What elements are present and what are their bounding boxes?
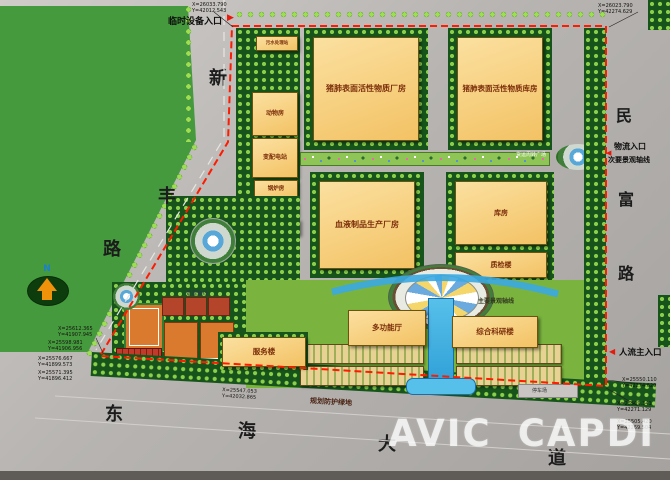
main-axis-label: 主要景观轴线 [478,296,514,305]
building-surfactant-factory: 猪肺表面活性物质厂房 [313,37,419,141]
building-surfactant-warehouse: 猪肺表面活性物质库房 [457,37,543,141]
building-animal-house: 动物房 [252,92,298,136]
grove-surfactant-warehouse: 猪肺表面活性物质库房 [448,28,552,150]
coordinate-label: X=25612.365 Y=41907.945 [58,326,93,339]
small-court [185,297,207,316]
compass-arrow-icon [37,278,57,291]
road-minfu-char: 路 [618,260,634,284]
building-warehouse: 库房 [455,181,547,245]
round-plaza-small [113,283,140,310]
building-research: 综合科研楼 [452,316,538,348]
building-sewage: 污水处理站 [256,36,298,51]
logistics-entrance-arrow-icon: ◀ [606,149,611,157]
secondary-axis-label: 次要景观轴线 [608,155,650,165]
protective-green-label: 规划防护绿地 [310,396,352,408]
road-minfu-char: 民 [616,102,632,126]
coordinate-label: X=26033.790 Y=42012.543 [192,2,227,15]
road-xinfeng-char: 新 [209,64,227,90]
site-plan-canvas: N 污水处理站 动物房 变配电站 锅炉房 乙醇库 化学药品库 猪肺表面活性物质厂… [0,0,670,480]
compass: N [26,264,68,312]
small-court [162,297,184,316]
logistics-entrance-label: 物流入口 [614,141,646,152]
building-substation: 变配电站 [252,138,298,178]
east-tree-strip [584,28,606,384]
coordinate-label: X=25571.395 Y=41896.412 [38,370,73,383]
basketball-court [164,322,198,360]
garden-fountain [190,218,236,264]
west-garden [166,196,300,286]
coordinate-label: X=25576.667 Y=41899.573 [38,356,73,369]
compass-arrow-stem [42,291,52,300]
road-donghai-char: 海 [238,417,256,443]
coordinate-label: X=25598.981 Y=41906.956 [48,340,83,353]
east-green-sliver [658,295,670,347]
coordinate-label: X=25547.053 Y=42032.865 [222,387,257,401]
freight-plaza-label: 货运周转广场 [516,151,546,158]
small-court [208,297,230,316]
temp-entrance-arrow-icon: ▶ [227,13,234,23]
pedestrian-entrance-label: 人流主入口 [619,346,662,358]
northeast-green [648,0,670,30]
grove-blood-factory: 血液制品生产厂房 [310,172,424,278]
coordinate-label: X=25550.110 Y=42274.629 [622,377,657,390]
road-xinfeng-char: 丰 [158,182,176,208]
flower-median [300,152,550,166]
south-row-building [300,344,424,364]
road-minfu-char: 富 [618,186,634,210]
parking-lot [518,384,578,398]
compass-north-label: N [26,264,68,274]
coordinate-label: X=26023.790 Y=42274.629 [598,3,633,16]
bottom-edge-strip [0,471,670,480]
north-treeline [234,9,608,21]
west-axis-label: 景观轴线 [186,289,208,297]
road-xinfeng-char: 路 [103,235,121,261]
watermark: AVICCAPDI [388,412,670,455]
building-blood-factory: 血液制品生产厂房 [319,181,415,269]
temp-entrance-label: 临时设备入口 [168,14,222,27]
building-service: 服务楼 [222,337,306,367]
parking-label: 停车场 [532,387,547,394]
tennis-court [124,303,164,351]
building-multifunction-hall: 多功能厅 [348,310,426,346]
water-pool [406,378,476,395]
watermark-avic: AVIC [388,412,492,455]
watermark-capdi: CAPDI [518,412,655,455]
water-canal [428,298,454,388]
road-donghai-char: 东 [105,400,123,426]
grove-surfactant-factory: 猪肺表面活性物质厂房 [304,28,428,150]
pedestrian-entrance-arrow-icon: ◀ [609,347,615,356]
